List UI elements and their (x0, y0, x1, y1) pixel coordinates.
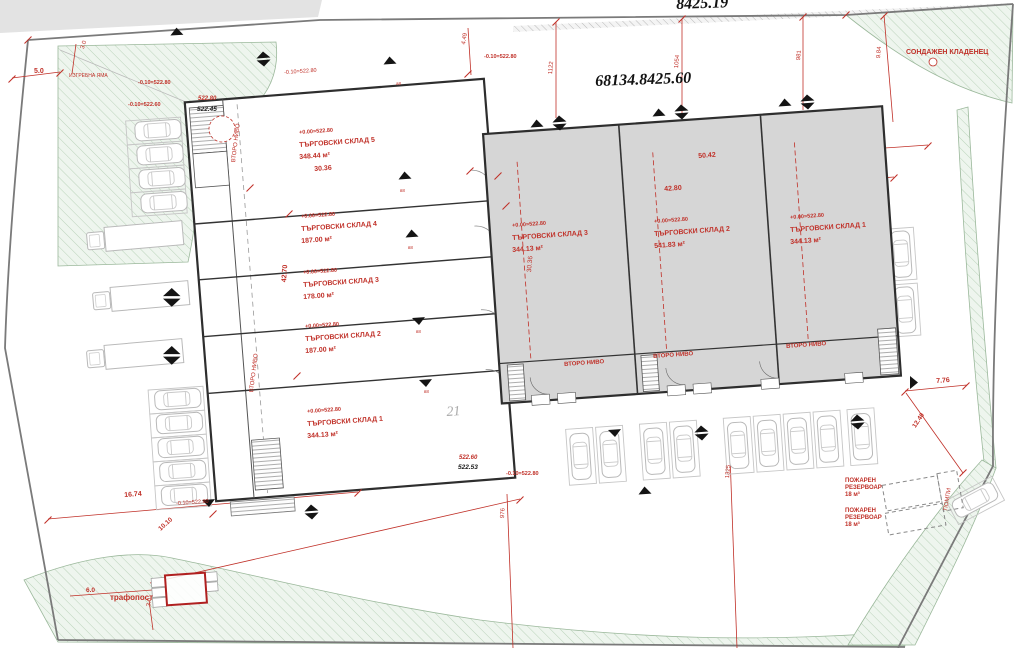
plan-number-top: 8425.19 (676, 0, 729, 13)
borehole-symbol (929, 58, 937, 66)
left-building (185, 79, 521, 518)
cadastral-number: 68134.8425.60 (595, 71, 691, 90)
site-plan: СОНДАЖЕН КЛАДЕНЕЦИЗГРЕБНА ЯМА5.03.0-0.10… (0, 0, 1024, 648)
plan-linework (0, 0, 1024, 648)
parking-row-left-bottom (148, 386, 211, 510)
right-building (483, 106, 901, 407)
cesspool-circle (209, 116, 235, 142)
parking-row-bottom (566, 408, 878, 485)
plot-number: 21 (446, 405, 461, 420)
